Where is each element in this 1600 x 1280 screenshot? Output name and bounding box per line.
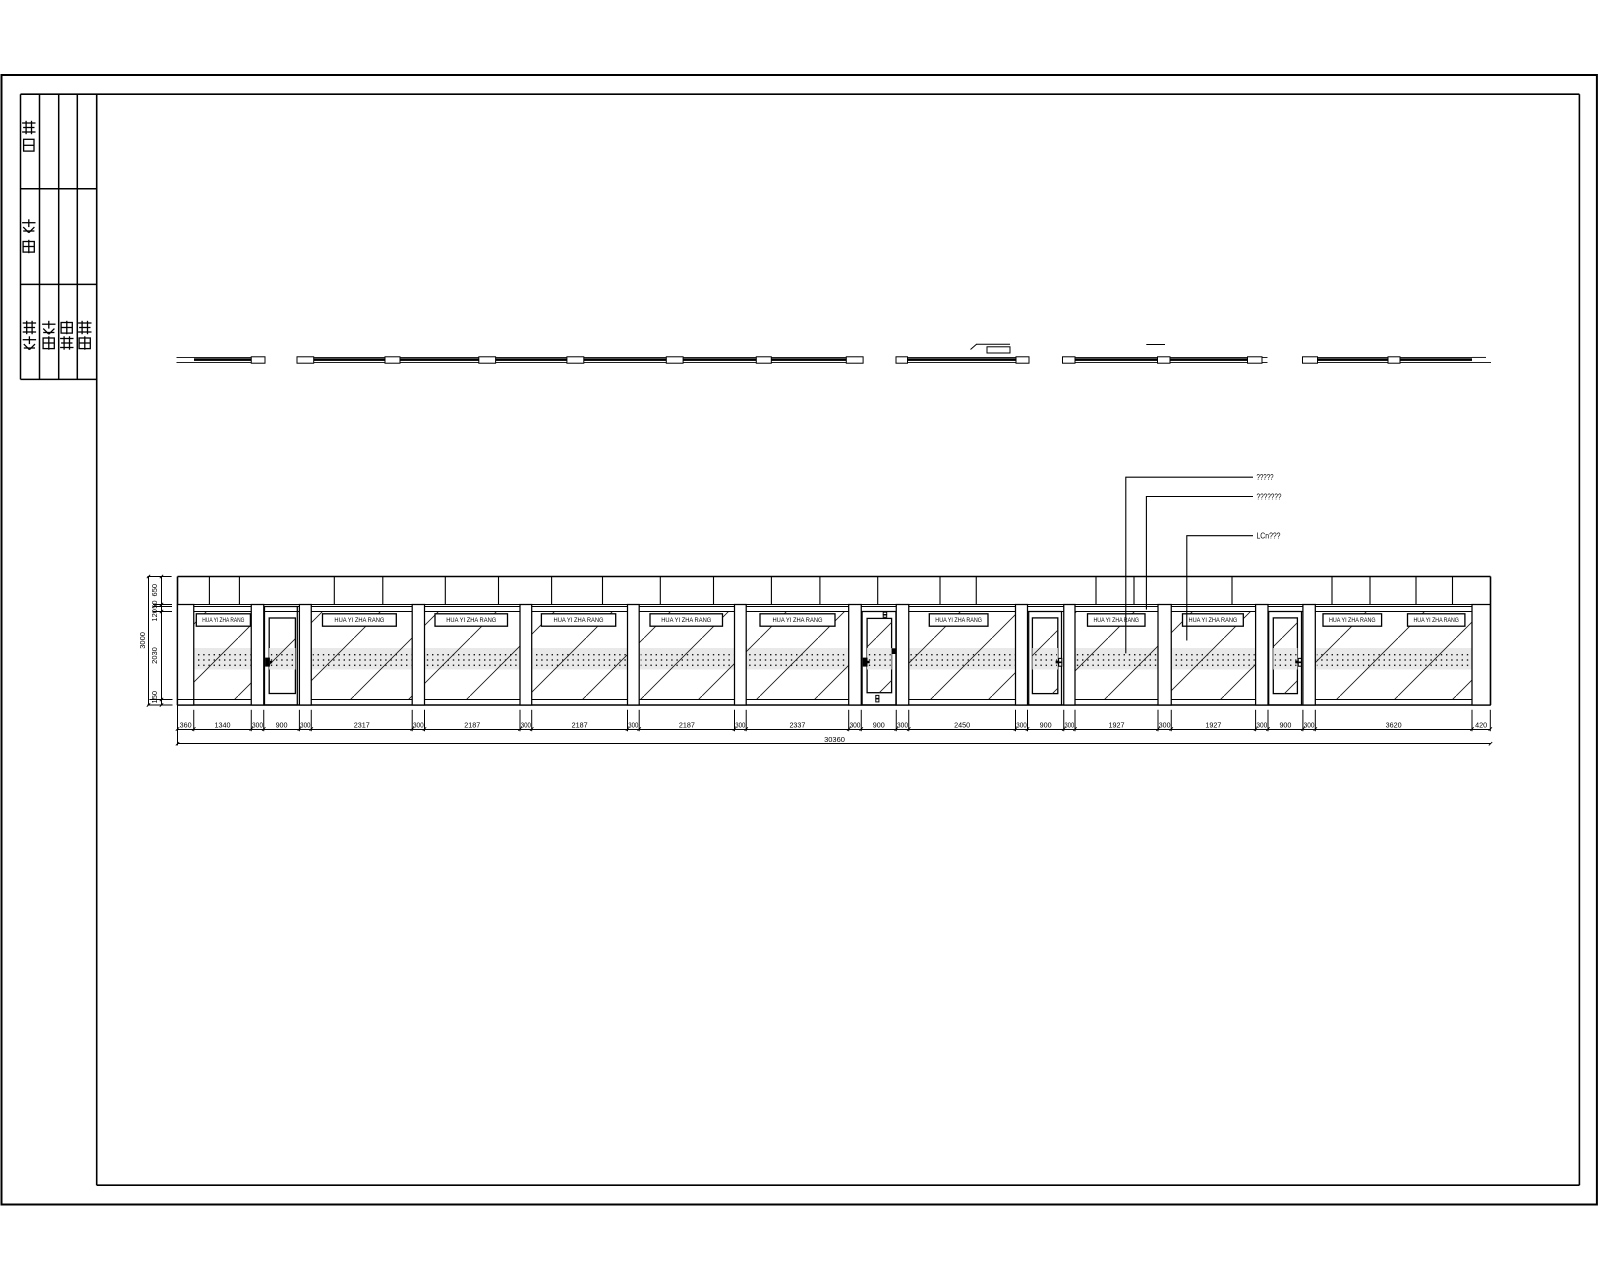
svg-text:150: 150	[150, 691, 159, 704]
svg-text:???????: ???????	[1257, 492, 1282, 501]
svg-text:300: 300	[628, 720, 638, 729]
svg-text:420: 420	[1475, 720, 1487, 729]
svg-text:HUA YI ZHA RANG: HUA YI ZHA RANG	[554, 617, 604, 624]
svg-text:3000: 3000	[138, 632, 147, 649]
svg-text:HUA YI ZHA RANG: HUA YI ZHA RANG	[661, 617, 711, 624]
svg-text:360: 360	[180, 720, 192, 729]
svg-text:300: 300	[413, 720, 424, 729]
svg-text:2187: 2187	[464, 720, 480, 729]
svg-text:300: 300	[252, 720, 263, 729]
svg-text:HUA YI ZHA RANG: HUA YI ZHA RANG	[935, 617, 982, 624]
svg-text:HUA YI ZHA RANG: HUA YI ZHA RANG	[1189, 617, 1238, 624]
svg-text:HUA YI ZHA RANG: HUA YI ZHA RANG	[334, 617, 384, 624]
svg-text:HUA YI ZHA RANG: HUA YI ZHA RANG	[1414, 617, 1460, 624]
svg-text:2187: 2187	[572, 720, 588, 729]
svg-text:1927: 1927	[1205, 720, 1221, 729]
svg-text:30360: 30360	[824, 735, 845, 744]
svg-text:900: 900	[276, 720, 288, 729]
svg-text:HUA YI ZHA RANG: HUA YI ZHA RANG	[202, 617, 244, 624]
svg-text:300: 300	[300, 720, 310, 729]
svg-text:120: 120	[150, 609, 159, 622]
svg-text:50: 50	[150, 600, 159, 608]
svg-text:2030: 2030	[150, 647, 159, 664]
svg-text:300: 300	[1159, 720, 1171, 729]
svg-text:?????: ?????	[1257, 473, 1274, 482]
svg-text:300: 300	[1256, 720, 1267, 729]
svg-text:300: 300	[1304, 720, 1315, 729]
svg-text:300: 300	[897, 720, 908, 729]
svg-text:300: 300	[1016, 720, 1027, 729]
svg-text:900: 900	[873, 720, 885, 729]
svg-text:650: 650	[150, 584, 159, 597]
svg-text:300: 300	[735, 720, 745, 729]
svg-text:LCn???: LCn???	[1257, 532, 1281, 541]
svg-text:1340: 1340	[215, 720, 231, 729]
svg-text:1927: 1927	[1109, 720, 1125, 729]
svg-text:HUA YI ZHA RANG: HUA YI ZHA RANG	[1094, 617, 1140, 624]
svg-text:300: 300	[521, 720, 531, 729]
svg-text:2317: 2317	[354, 720, 370, 729]
svg-text:300: 300	[1065, 720, 1075, 729]
svg-text:300: 300	[849, 720, 860, 729]
svg-text:2337: 2337	[789, 720, 805, 729]
svg-text:900: 900	[1040, 720, 1052, 729]
svg-text:HUA YI ZHA RANG: HUA YI ZHA RANG	[446, 617, 496, 624]
svg-text:HUA YI ZHA RANG: HUA YI ZHA RANG	[1329, 617, 1376, 624]
svg-text:HUA YI ZHA RANG: HUA YI ZHA RANG	[773, 617, 823, 624]
svg-text:900: 900	[1279, 720, 1291, 729]
svg-text:3620: 3620	[1386, 720, 1402, 729]
svg-text:2450: 2450	[954, 720, 970, 729]
svg-text:2187: 2187	[679, 720, 695, 729]
